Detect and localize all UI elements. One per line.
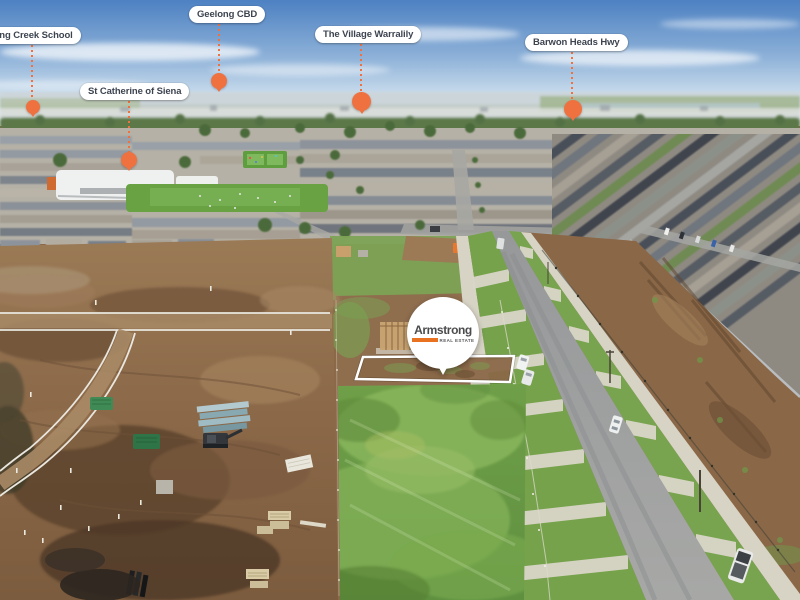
brand-orange-bar-icon	[412, 338, 438, 342]
map-pin-icon	[352, 92, 371, 111]
brand-logo-row: REAL ESTATE	[412, 338, 475, 343]
marker-label: St Catherine of Siena	[80, 83, 189, 100]
property-pin: Armstrong REAL ESTATE	[407, 297, 479, 375]
pin-balloon: Armstrong REAL ESTATE	[407, 297, 479, 369]
marker-label: The Village Warralily	[315, 26, 421, 43]
marker-leader-line	[128, 101, 130, 152]
marker-label: Armstrong Creek School	[0, 27, 81, 44]
marker-leader-line	[31, 45, 33, 100]
brand-name: Armstrong	[414, 324, 472, 336]
construction-site	[0, 238, 340, 600]
map-pin-icon	[564, 100, 582, 118]
brand-tagline: REAL ESTATE	[440, 338, 475, 343]
map-pin-icon	[121, 152, 137, 168]
marker-leader-line	[571, 52, 573, 100]
map-pin-icon	[211, 73, 227, 89]
marker-leader-line	[360, 44, 362, 92]
marker-label: Geelong CBD	[189, 6, 265, 23]
map-pin-icon	[26, 100, 40, 114]
aerial-listing-photo: Armstrong Creek School Geelong CBD St Ca…	[0, 0, 800, 600]
marker-label: Barwon Heads Hwy	[525, 34, 628, 51]
marker-leader-line	[218, 24, 220, 73]
